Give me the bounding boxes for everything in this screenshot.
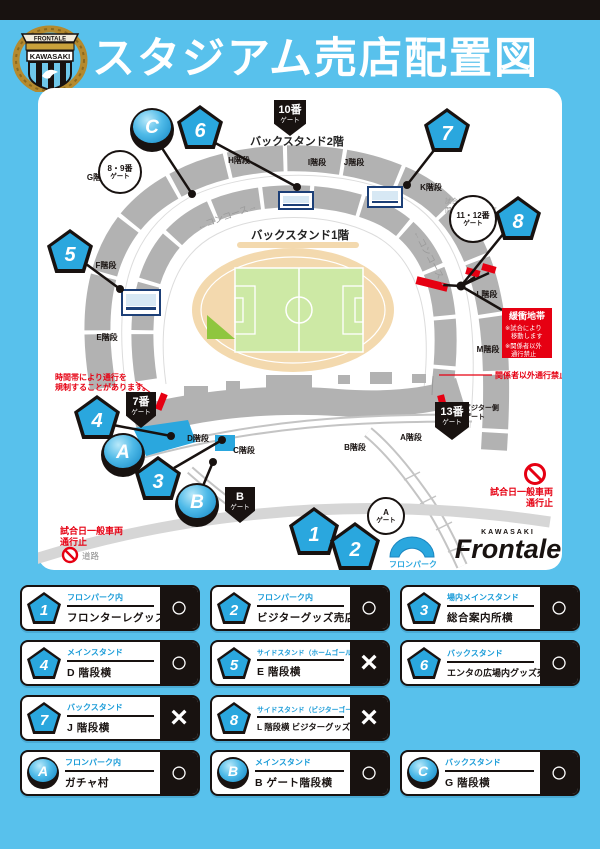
fronpark-logo: フロンパーク (389, 537, 437, 569)
stadium-map-panel: 緩衝地帯 ※試合により 移動します ※関係者以外 通行禁止 バックスタンド2階 … (38, 88, 562, 570)
legend-marker-6: 6 (407, 647, 441, 679)
svg-text:I階段: I階段 (308, 157, 326, 167)
legend-item-7: 7 バックスタンドJ 階段横 × (20, 695, 200, 741)
svg-text:通行禁止: 通行禁止 (511, 349, 536, 358)
legend-marker-7: 7 (27, 702, 61, 734)
availability-mark: ○ (160, 642, 198, 684)
svg-text:規制することがあります。: 規制することがあります。 (55, 382, 150, 392)
legend-marker-4: 4 (27, 647, 61, 679)
svg-text:K階段: K階段 (420, 182, 442, 192)
legend-marker-5: 5 (217, 647, 251, 679)
availability-mark: × (160, 697, 198, 739)
gate-a: Aゲート (367, 497, 405, 535)
legend-item-4: 4 メインスタンドD 階段横 ○ (20, 640, 200, 686)
legend-item-a: A フロンパーク内ガチャ村 ○ (20, 750, 200, 796)
legend-marker-1: 1 (27, 592, 61, 624)
no-entry-icon (63, 548, 77, 562)
no-cars-note-right: 試合日一般車両 通行止 (490, 465, 553, 509)
availability-mark: ○ (160, 752, 198, 794)
svg-text:※関係者以外: ※関係者以外 (505, 341, 542, 350)
legend-marker-a: A (27, 757, 59, 789)
buffer-zone-box: 緩衝地帯 ※試合により 移動します ※関係者以外 通行禁止 (502, 308, 552, 358)
availability-mark: ○ (540, 587, 578, 629)
crest-banner-text: FRONTALE (34, 37, 66, 43)
availability-mark: ○ (350, 752, 388, 794)
svg-text:M階段: M階段 (477, 344, 500, 354)
svg-text:H階段: H階段 (228, 155, 250, 165)
svg-text:C階段: C階段 (233, 445, 255, 455)
legend-marker-3: 3 (407, 592, 441, 624)
buffer-title: 緩衝地帯 (509, 310, 545, 321)
backstand-1f-label: バックスタンド1階 (251, 228, 350, 242)
legend-item-6: 6 バックスタンドエンタの広場内グッズ売店 ○ (400, 640, 580, 686)
svg-text:F階段: F階段 (96, 260, 117, 270)
availability-mark: × (350, 697, 388, 739)
top-black-bar (0, 0, 600, 20)
gate-11-12: 11・12番ゲート (449, 195, 497, 243)
map-marker-a: A (101, 433, 145, 477)
availability-mark: ○ (160, 587, 198, 629)
legend-marker-8: 8 (217, 702, 251, 734)
svg-text:※試合により: ※試合により (505, 323, 542, 332)
page-title: スタジアム売店配置図 (92, 24, 539, 86)
svg-text:試合日一般車両: 試合日一般車両 (490, 486, 553, 497)
field (192, 242, 394, 372)
legend-item-5: 5 サイドスタンド（ホームゴール裏）E 階段横 × (210, 640, 390, 686)
legend-item-8: 8 サイドスタンド（ビジターゴール裏）L 階段横 ビジターグッズ売店 × (210, 695, 390, 741)
legend: 1 フロンパーク内フロンターレグッズ売店 ○ 2 フロンパーク内ビジターグッズ売… (20, 585, 580, 796)
svg-text:ビジター側: ビジター側 (464, 403, 499, 412)
no-entry-icon (526, 465, 545, 484)
availability-mark: ○ (350, 587, 388, 629)
svg-text:Frontale: Frontale (455, 534, 562, 564)
legend-item-b: B メインスタンドB ゲート階段横 ○ (210, 750, 390, 796)
availability-mark: ○ (540, 752, 578, 794)
legend-item-2: 2 フロンパーク内ビジターグッズ売店 ○ (210, 585, 390, 631)
svg-text:L階段: L階段 (477, 289, 498, 299)
road-label: 道路 (82, 551, 100, 561)
map-marker-c: C (130, 108, 174, 152)
svg-text:B階段: B階段 (344, 442, 366, 452)
svg-text:E階段: E階段 (96, 332, 117, 342)
club-crest: FRONTALE KAWASAKI (12, 24, 88, 92)
screen-icon (279, 192, 313, 209)
legend-item-3: 3 場内メインスタンド総合案内所横 ○ (400, 585, 580, 631)
legend-item-c: C バックスタンドG 階段横 ○ (400, 750, 580, 796)
availability-mark: × (350, 642, 388, 684)
map-marker-b: B (175, 483, 219, 527)
screen-icon (368, 187, 402, 207)
svg-text:通行止: 通行止 (60, 536, 87, 547)
crest-gold-band (26, 43, 74, 50)
svg-text:J階段: J階段 (344, 157, 364, 167)
backstand-2f-label: バックスタンド2階 (250, 134, 344, 148)
legend-marker-c: C (407, 757, 439, 789)
screen-icon (122, 290, 160, 315)
svg-text:時間帯により通行を: 時間帯により通行を (55, 372, 127, 382)
svg-text:D階段: D階段 (187, 433, 209, 443)
svg-text:通行止: 通行止 (526, 497, 553, 508)
svg-text:移動します: 移動します (511, 331, 542, 340)
svg-text:フロンパーク: フロンパーク (389, 559, 437, 569)
svg-text:A階段: A階段 (400, 432, 422, 442)
legend-item-1: 1 フロンパーク内フロンターレグッズ売店 ○ (20, 585, 200, 631)
svg-text:関係者以外通行禁止: 関係者以外通行禁止 (495, 370, 562, 380)
frontale-logo: KAWASAKI Frontale (455, 529, 562, 564)
crest-club-text: KAWASAKI (30, 52, 70, 61)
gate-8-9: 8・9番ゲート (98, 150, 142, 194)
legend-marker-2: 2 (217, 592, 251, 624)
svg-text:試合日一般車両: 試合日一般車両 (60, 525, 123, 536)
availability-mark: ○ (540, 642, 578, 684)
legend-marker-b: B (217, 757, 249, 789)
